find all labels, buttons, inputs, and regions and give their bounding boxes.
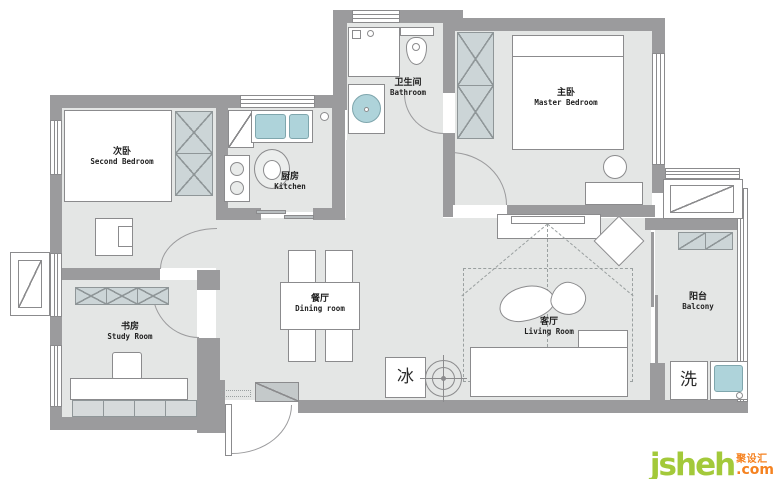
room-label-study-room-en: Study Room xyxy=(107,332,152,341)
desk-master xyxy=(585,182,643,205)
room-label-second-bedroom-en: Second Bedroom xyxy=(90,157,153,166)
room-label-bathroom: 卫生间 Bathroom xyxy=(390,78,426,97)
window-ac-platform-top xyxy=(665,168,740,179)
ac-unit-right xyxy=(670,185,734,213)
sliding-door-kitchen-a xyxy=(256,210,286,214)
room-label-dining-room-en: Dining room xyxy=(295,304,345,313)
wardrobe-second-bedroom-cell1 xyxy=(175,111,213,154)
wall-master-right-top xyxy=(652,18,665,53)
cabinet-study-bottom-cell1 xyxy=(72,400,104,417)
sliding-door-kitchen-b xyxy=(284,215,314,219)
floor-plan: 次卧 Second Bedroom 书房 Study Room 厨房 Kitch… xyxy=(0,0,780,479)
floor-hallway xyxy=(346,140,443,225)
shoe-cabinet-entry xyxy=(255,382,299,402)
window-master-right xyxy=(652,53,665,165)
toilet-tank xyxy=(400,27,434,36)
jsheh-logo-tld-text: .com xyxy=(736,465,774,477)
cabinet-study-bottom-cell3 xyxy=(134,400,166,417)
sink-basin-left-kitchen xyxy=(255,114,286,139)
room-label-living-room-zh: 客厅 xyxy=(524,317,574,327)
shower-head-icon xyxy=(367,30,374,37)
chair-study xyxy=(112,352,142,380)
jsheh-logo-right-column: 聚设汇 .com xyxy=(736,455,774,477)
laundry-faucet-icon xyxy=(736,392,743,399)
room-label-dining-room: 餐厅 Dining room xyxy=(295,294,345,313)
room-label-dining-room-zh: 餐厅 xyxy=(295,294,345,304)
counter-drain-icon xyxy=(320,112,329,121)
window-study-left xyxy=(50,345,62,407)
jsheh-logo: jsheh 聚设汇 .com xyxy=(650,454,774,477)
balcony-cabinet-cell1 xyxy=(678,232,706,250)
wall-balcony-top xyxy=(645,218,748,230)
room-label-living-room-en: Living Room xyxy=(524,327,574,336)
basin-drain-icon xyxy=(364,107,369,112)
burner-bottom-icon xyxy=(230,181,244,195)
cabinet-study-bottom-cell2 xyxy=(103,400,135,417)
window-kitchen-top xyxy=(240,95,315,108)
room-label-bathroom-en: Bathroom xyxy=(390,88,426,97)
sofa-main xyxy=(470,347,628,397)
window-bay-left xyxy=(50,253,62,317)
window-bedroom-left xyxy=(50,120,62,175)
stool-master xyxy=(603,155,627,179)
sliding-door-balcony-a xyxy=(651,232,654,307)
window-bathroom-top xyxy=(352,10,400,23)
dining-chair-bottom-left xyxy=(288,329,316,362)
wall-kitchen-right xyxy=(332,108,345,208)
fan-axis-vertical xyxy=(443,355,444,402)
shelf-study-top-cell2 xyxy=(106,287,138,305)
cabinet-study-bottom-cell4 xyxy=(165,400,197,417)
shower-mixer-icon xyxy=(352,30,361,39)
shelf-study-top-cell3 xyxy=(137,287,169,305)
wardrobe-second-bedroom-cell2 xyxy=(175,153,213,196)
burner-top-icon xyxy=(230,162,244,176)
wardrobe-master-cell1 xyxy=(457,32,494,86)
wall-study-right-stub xyxy=(197,270,220,290)
jsheh-logo-brand-text: jsheh xyxy=(650,454,734,477)
wall-kitchen-bottom-left xyxy=(216,208,261,220)
room-label-second-bedroom-zh: 次卧 xyxy=(90,147,153,157)
wall-balcony-left-pillar xyxy=(650,363,665,400)
room-label-study-room: 书房 Study Room xyxy=(107,322,152,341)
room-label-bathroom-zh: 卫生间 xyxy=(390,78,426,88)
room-label-living-room: 客厅 Living Room xyxy=(524,317,574,336)
balcony-cabinet-cell2 xyxy=(705,232,733,250)
shelf-study-top-cell1 xyxy=(75,287,107,305)
wall-master-top xyxy=(452,18,665,31)
room-label-second-bedroom: 次卧 Second Bedroom xyxy=(90,147,153,166)
wall-study-bottom xyxy=(50,417,226,430)
door-arc-entry xyxy=(232,405,292,454)
laundry-sink-basin xyxy=(714,365,743,392)
wall-master-bottom-left xyxy=(443,205,453,217)
room-label-master-bedroom-en: Master Bedroom xyxy=(534,98,597,107)
room-label-kitchen: 厨房 Kitchen xyxy=(274,172,306,191)
entry-door-leaf xyxy=(225,404,232,456)
desk-study xyxy=(70,378,188,400)
chair-second-bedroom xyxy=(118,226,133,247)
room-label-kitchen-en: Kitchen xyxy=(274,182,306,191)
wall-second-bedroom-bottom xyxy=(62,268,160,280)
ac-unit-left xyxy=(18,260,42,308)
wall-study-right-lower xyxy=(197,338,220,383)
wall-bathroom-hall-upper xyxy=(443,23,455,93)
fridge-character: 冰 xyxy=(397,369,414,386)
sliding-door-balcony-b xyxy=(655,295,658,365)
room-label-balcony-zh: 阳台 xyxy=(682,292,714,302)
wall-bottom-main xyxy=(298,400,748,413)
room-label-master-bedroom: 主卧 Master Bedroom xyxy=(534,88,597,107)
bed-pillow-line xyxy=(513,56,623,57)
room-label-master-bedroom-zh: 主卧 xyxy=(534,88,597,98)
dining-chair-bottom-right xyxy=(325,329,353,362)
room-label-balcony-en: Balcony xyxy=(682,302,714,311)
dining-chair-top-left xyxy=(288,250,316,283)
dining-chair-top-right xyxy=(325,250,353,283)
toilet-flush-icon xyxy=(412,43,420,51)
room-label-balcony: 阳台 Balcony xyxy=(682,292,714,311)
sink-basin-right-kitchen xyxy=(289,114,309,139)
washing-machine-character: 洗 xyxy=(680,372,697,389)
wardrobe-master-cell2 xyxy=(457,85,494,139)
room-label-study-room-zh: 书房 xyxy=(107,322,152,332)
wall-kitchen-bottom-right xyxy=(313,208,345,220)
room-label-kitchen-zh: 厨房 xyxy=(274,172,306,182)
doormat-entry xyxy=(221,390,251,397)
wall-bathroom-left xyxy=(333,10,347,110)
